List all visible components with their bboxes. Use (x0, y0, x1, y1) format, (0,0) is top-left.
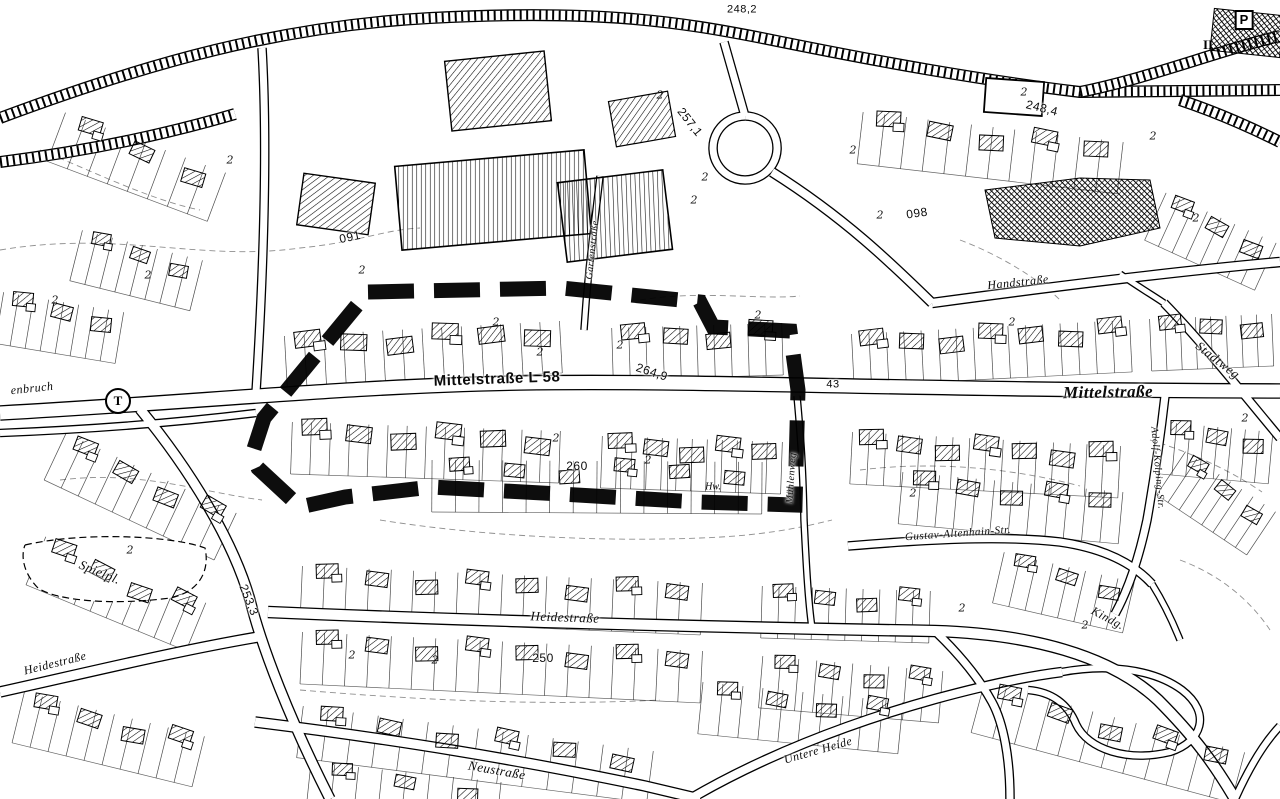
wooded-area (985, 178, 1160, 246)
building (494, 727, 523, 750)
building-outline (984, 78, 1044, 116)
building (436, 733, 459, 748)
building (1089, 493, 1111, 507)
building (1206, 428, 1228, 445)
building (465, 636, 493, 657)
building (973, 434, 1003, 457)
building (773, 584, 797, 602)
building (346, 425, 373, 444)
building (752, 443, 777, 459)
building (1098, 724, 1122, 742)
building (1097, 316, 1127, 339)
building (608, 433, 636, 453)
building (516, 645, 538, 659)
building (665, 584, 689, 601)
building (465, 569, 492, 590)
building (91, 232, 114, 251)
building (610, 754, 634, 772)
building (1241, 505, 1263, 524)
building (51, 303, 74, 322)
building (1186, 455, 1212, 479)
building (1000, 491, 1022, 505)
building (480, 430, 506, 447)
building (340, 334, 367, 351)
building (935, 445, 959, 460)
building (386, 336, 414, 355)
building (857, 598, 878, 612)
building (1012, 443, 1036, 458)
wooded-area (1210, 8, 1280, 57)
building (956, 479, 980, 497)
building (1214, 480, 1236, 501)
building (1056, 568, 1079, 586)
building (899, 333, 924, 349)
building (391, 433, 417, 450)
building (616, 644, 642, 663)
building (680, 447, 705, 463)
building (416, 580, 438, 595)
building (614, 458, 638, 477)
building (181, 168, 206, 188)
building (130, 246, 151, 263)
building (978, 323, 1006, 344)
building (432, 323, 463, 345)
building (294, 329, 326, 353)
building (1240, 323, 1263, 339)
building (553, 742, 576, 757)
building (669, 464, 690, 478)
building (316, 564, 342, 583)
building (859, 429, 887, 449)
building (616, 576, 642, 595)
building (316, 630, 342, 649)
building (33, 693, 61, 715)
building (1058, 331, 1083, 347)
building (864, 675, 884, 688)
building (477, 325, 505, 344)
building (449, 457, 473, 475)
building (897, 436, 923, 454)
building (524, 330, 551, 347)
map-artwork (0, 0, 1280, 799)
map-canvas[interactable]: Mittelstraße L 58MittelstraßeHeidestraße… (0, 0, 1280, 799)
building (458, 788, 478, 799)
building (121, 727, 145, 745)
building (997, 684, 1025, 707)
building (979, 135, 1004, 151)
building (1243, 439, 1263, 453)
building (524, 437, 551, 456)
building (565, 585, 589, 602)
building (77, 708, 102, 728)
building (365, 571, 389, 588)
building (908, 665, 934, 686)
building (814, 590, 835, 605)
building (1200, 319, 1223, 334)
building (365, 637, 389, 654)
building (766, 691, 788, 707)
building (1018, 326, 1044, 344)
building (1049, 450, 1075, 468)
building (1240, 240, 1263, 259)
building (620, 322, 649, 344)
building (1084, 141, 1109, 157)
building (559, 470, 580, 484)
building (715, 435, 745, 458)
building (1031, 127, 1062, 152)
building (876, 111, 904, 132)
building (394, 774, 416, 790)
building (1098, 585, 1120, 600)
building (859, 328, 889, 351)
building (516, 578, 538, 593)
building (939, 336, 965, 354)
building (504, 463, 525, 478)
building (1205, 216, 1229, 237)
building (90, 317, 111, 333)
building (113, 460, 139, 483)
building (717, 682, 740, 700)
building (665, 651, 689, 668)
building (169, 263, 189, 278)
building (1171, 420, 1194, 439)
building (416, 647, 438, 661)
building (77, 117, 106, 142)
large-halls-layer (297, 51, 676, 262)
building (724, 470, 745, 485)
building (643, 439, 669, 457)
building (816, 704, 836, 718)
building (167, 725, 197, 750)
building (898, 587, 923, 606)
building (71, 436, 101, 462)
building (775, 655, 798, 672)
building (12, 291, 37, 311)
building (435, 422, 466, 446)
building (320, 706, 346, 726)
building (302, 418, 331, 440)
building (565, 653, 589, 670)
building (663, 328, 688, 344)
building (819, 664, 841, 680)
building (332, 763, 356, 779)
